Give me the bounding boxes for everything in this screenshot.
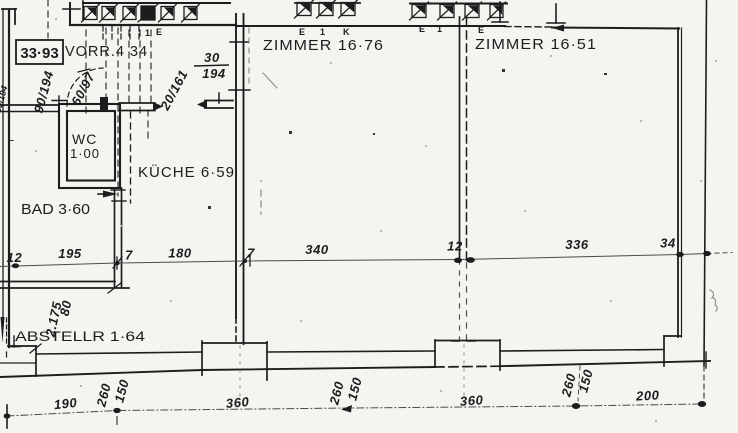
svg-text:E: E [156, 27, 162, 37]
svg-text:34: 34 [660, 236, 676, 251]
svg-text:340: 340 [305, 242, 329, 257]
svg-text:180: 180 [168, 246, 192, 261]
svg-text:WC: WC [72, 131, 97, 147]
svg-text:E: E [478, 25, 484, 35]
svg-text:ABSTELLR 1·64: ABSTELLR 1·64 [15, 329, 146, 344]
svg-text:ZIMMER 16·76: ZIMMER 16·76 [263, 37, 384, 54]
svg-text:1: 1 [145, 28, 150, 38]
svg-text:1·00: 1·00 [70, 146, 100, 161]
svg-text:360: 360 [225, 394, 250, 411]
svg-text:ZIMMER 16·51: ZIMMER 16·51 [475, 36, 597, 53]
svg-text:7: 7 [247, 246, 255, 261]
svg-text:33·93: 33·93 [20, 45, 58, 62]
svg-text:30: 30 [204, 50, 220, 65]
svg-text:1: 1 [437, 24, 442, 34]
svg-text:7: 7 [125, 248, 133, 263]
svg-text:L: L [8, 132, 14, 144]
svg-text:12: 12 [7, 250, 23, 265]
svg-text:1: 1 [320, 27, 325, 37]
svg-text:200: 200 [635, 387, 660, 403]
svg-text:336: 336 [565, 237, 589, 252]
svg-text:K: K [343, 27, 350, 37]
svg-text:12: 12 [447, 239, 463, 254]
svg-text:BAD 3·60: BAD 3·60 [21, 201, 90, 218]
svg-text:E: E [299, 27, 305, 37]
svg-text:KÜCHE 6·59: KÜCHE 6·59 [138, 163, 235, 181]
svg-text:194: 194 [202, 66, 226, 81]
svg-text:195: 195 [58, 246, 82, 261]
svg-text:190: 190 [53, 395, 78, 412]
svg-text:360: 360 [459, 392, 484, 409]
svg-text:E: E [419, 24, 425, 34]
svg-text:VORR.4 34: VORR.4 34 [65, 43, 148, 60]
